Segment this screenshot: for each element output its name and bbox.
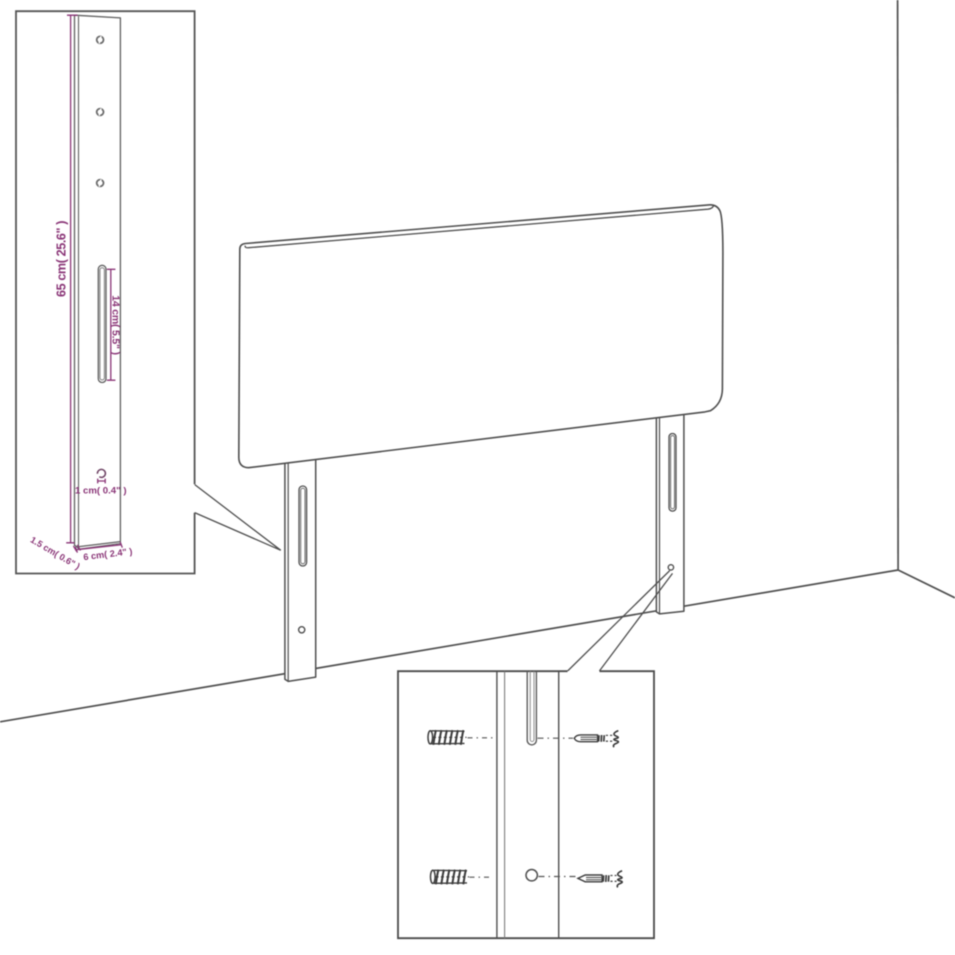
svg-text:14 cm( 5.5" ): 14 cm( 5.5" ) <box>109 295 121 355</box>
svg-text:1 cm( 0.4" ): 1 cm( 0.4" ) <box>75 486 126 497</box>
svg-text:65 cm( 25.6" ): 65 cm( 25.6" ) <box>54 221 68 297</box>
